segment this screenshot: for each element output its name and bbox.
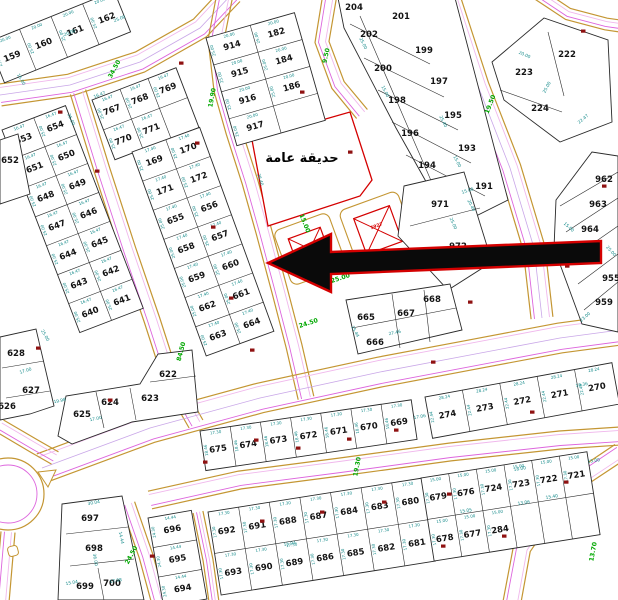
- parcel-label: 196: [401, 129, 419, 139]
- parcel-label: 959: [595, 298, 613, 308]
- survey-marker: [581, 30, 586, 33]
- parcel-label: 191: [475, 182, 493, 192]
- survey-marker: [179, 62, 184, 65]
- traffic-island: [7, 545, 19, 557]
- parcel-label: 698: [85, 544, 103, 554]
- parcel-label: 223: [515, 68, 533, 78]
- parcel-label: 667: [397, 309, 415, 319]
- parcel-label: 197: [430, 77, 448, 87]
- parcel-label: 625: [73, 410, 91, 420]
- parcel-label: 198: [388, 96, 406, 106]
- parcel-label: 626: [0, 402, 16, 412]
- parcel-label: 627: [22, 386, 40, 396]
- survey-marker: [58, 111, 63, 114]
- survey-marker: [211, 226, 216, 229]
- survey-marker: [348, 151, 353, 154]
- survey-marker: [502, 535, 507, 538]
- survey-marker: [95, 170, 100, 173]
- parcel-label: 963: [589, 200, 607, 210]
- parcel-label: 204: [345, 3, 363, 13]
- survey-marker: [254, 439, 259, 442]
- parcel-label: 955: [602, 274, 618, 284]
- parcel-label: 201: [392, 12, 410, 22]
- parcel-label: 222: [558, 50, 576, 60]
- parcel-label: 193: [458, 144, 476, 154]
- survey-marker: [300, 91, 305, 94]
- parcel-label: 199: [415, 46, 433, 56]
- parcel-label: 964: [581, 225, 599, 235]
- survey-marker: [150, 555, 155, 558]
- cadastral-map: حديقة عامة592715920.0025.0016020.0025.00…: [0, 0, 618, 600]
- survey-marker: [347, 438, 352, 441]
- parcel-label: 194: [418, 161, 436, 171]
- parcel-label: 699: [76, 582, 94, 592]
- parcel-label: 622: [159, 370, 177, 380]
- survey-marker: [296, 447, 301, 450]
- parcel-label: 652: [1, 156, 19, 166]
- survey-marker: [382, 501, 387, 504]
- survey-marker: [260, 520, 265, 523]
- map-canvas: حديقة عامة592715920.0025.0016020.0025.00…: [0, 0, 618, 600]
- parcel-label: 195: [444, 111, 462, 121]
- parcel-label: 200: [374, 64, 392, 74]
- survey-marker: [441, 545, 446, 548]
- survey-marker: [36, 347, 41, 350]
- parcel-label: 697: [81, 514, 99, 524]
- parcel-label: 665: [357, 313, 375, 323]
- survey-marker: [320, 511, 325, 514]
- survey-marker: [195, 142, 200, 145]
- survey-marker: [431, 361, 436, 364]
- garden-label: حديقة عامة: [265, 151, 338, 166]
- survey-marker: [602, 185, 607, 188]
- parcel-label: 668: [423, 295, 441, 305]
- parcel-label: 962: [595, 175, 613, 185]
- survey-marker: [447, 493, 452, 496]
- survey-marker: [203, 461, 208, 464]
- parcel-label: 628: [7, 349, 25, 359]
- survey-marker: [394, 429, 399, 432]
- parcel-label: 623: [141, 394, 159, 404]
- parcel-label: 971: [431, 200, 449, 210]
- survey-marker: [468, 301, 473, 304]
- survey-marker: [250, 349, 255, 352]
- parcel-label: 666: [366, 338, 384, 348]
- parcel-label: 224: [531, 104, 549, 114]
- survey-marker: [229, 297, 234, 300]
- survey-marker: [108, 399, 113, 402]
- survey-marker: [530, 411, 535, 414]
- survey-marker: [564, 481, 569, 484]
